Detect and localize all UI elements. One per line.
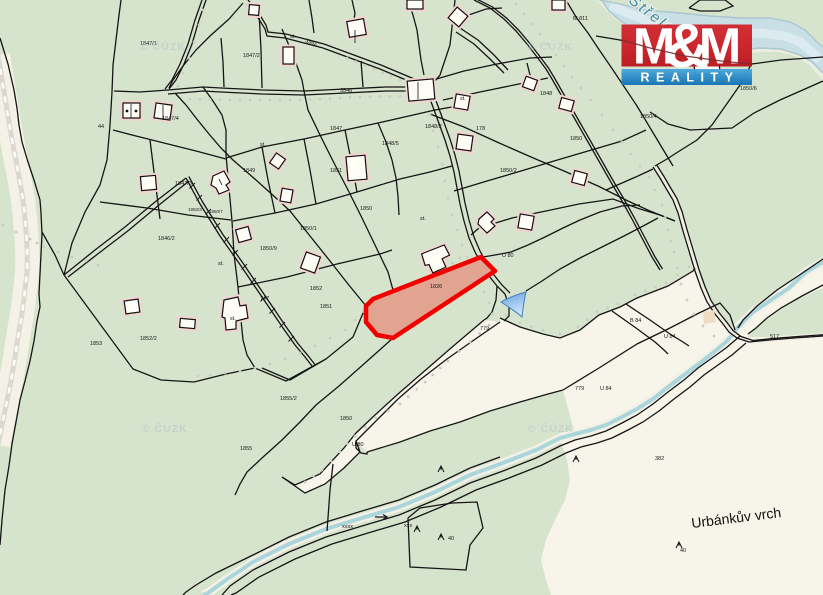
svg-text:1850: 1850 — [570, 136, 582, 142]
svg-text:1847/3: 1847/3 — [175, 181, 192, 187]
svg-text:1850/4: 1850/4 — [640, 114, 657, 120]
svg-text:st.: st. — [460, 96, 466, 102]
svg-text:1850/9: 1850/9 — [260, 246, 277, 252]
svg-text:1851: 1851 — [320, 304, 332, 310]
svg-text:© ČÚZK: © ČÚZK — [527, 40, 573, 53]
svg-text:st.: st. — [218, 261, 224, 267]
svg-text:1850: 1850 — [360, 206, 372, 212]
svg-text:1847: 1847 — [330, 126, 342, 132]
svg-text:779: 779 — [575, 386, 584, 392]
svg-text:1850/1: 1850/1 — [300, 226, 317, 232]
svg-text:1850/6: 1850/6 — [740, 86, 757, 92]
svg-text:B 84: B 84 — [630, 318, 641, 324]
svg-text:1851: 1851 — [330, 168, 342, 174]
svg-text:© ČÚZK: © ČÚZK — [142, 422, 188, 435]
svg-text:40: 40 — [448, 536, 454, 542]
svg-text:1850: 1850 — [340, 416, 352, 422]
svg-text:U 80: U 80 — [502, 253, 514, 259]
svg-text:44: 44 — [98, 124, 104, 130]
svg-text:1847/4: 1847/4 — [162, 116, 179, 122]
svg-text:1826: 1826 — [430, 284, 442, 290]
svg-text:1849: 1849 — [243, 168, 255, 174]
svg-text:1850/2: 1850/2 — [500, 168, 517, 174]
svg-text:747: 747 — [260, 296, 269, 302]
svg-text:1852/2: 1852/2 — [140, 336, 157, 342]
svg-text:1853: 1853 — [90, 341, 102, 347]
svg-text:U 80: U 80 — [352, 442, 364, 448]
svg-text:REALITY: REALITY — [641, 71, 740, 85]
svg-text:40: 40 — [680, 548, 686, 554]
svg-text:xxxx: xxxx — [342, 524, 353, 530]
svg-text:1855: 1855 — [240, 446, 252, 452]
svg-text:1848/2: 1848/2 — [425, 124, 442, 130]
svg-text:xxx: xxx — [404, 523, 413, 529]
svg-text:st.: st. — [290, 34, 296, 40]
svg-text:U 84: U 84 — [664, 334, 676, 340]
svg-text:st.: st. — [420, 216, 426, 222]
svg-text:1846/2: 1846/2 — [158, 236, 175, 242]
svg-text:178: 178 — [476, 126, 485, 132]
svg-text:1848/5: 1848/5 — [382, 141, 399, 147]
svg-text:382: 382 — [655, 456, 664, 462]
svg-text:© ČÚZK: © ČÚZK — [528, 422, 574, 435]
svg-text:1850/7: 1850/7 — [209, 209, 223, 214]
svg-text:M 811: M 811 — [573, 16, 588, 22]
svg-text:779: 779 — [480, 326, 489, 332]
svg-text:1855/2: 1855/2 — [280, 396, 297, 402]
svg-text:st.: st. — [260, 142, 266, 148]
svg-text:1847/2: 1847/2 — [243, 53, 260, 59]
svg-text:U 84: U 84 — [600, 386, 612, 392]
svg-text:1848: 1848 — [540, 91, 552, 97]
svg-text:1852: 1852 — [310, 286, 322, 292]
svg-text:3546: 3546 — [340, 88, 352, 94]
svg-text:517: 517 — [770, 334, 779, 340]
svg-text:© ČÚZK: © ČÚZK — [140, 40, 186, 53]
svg-text:st.: st. — [230, 316, 236, 322]
svg-text:1850/3: 1850/3 — [188, 207, 202, 212]
